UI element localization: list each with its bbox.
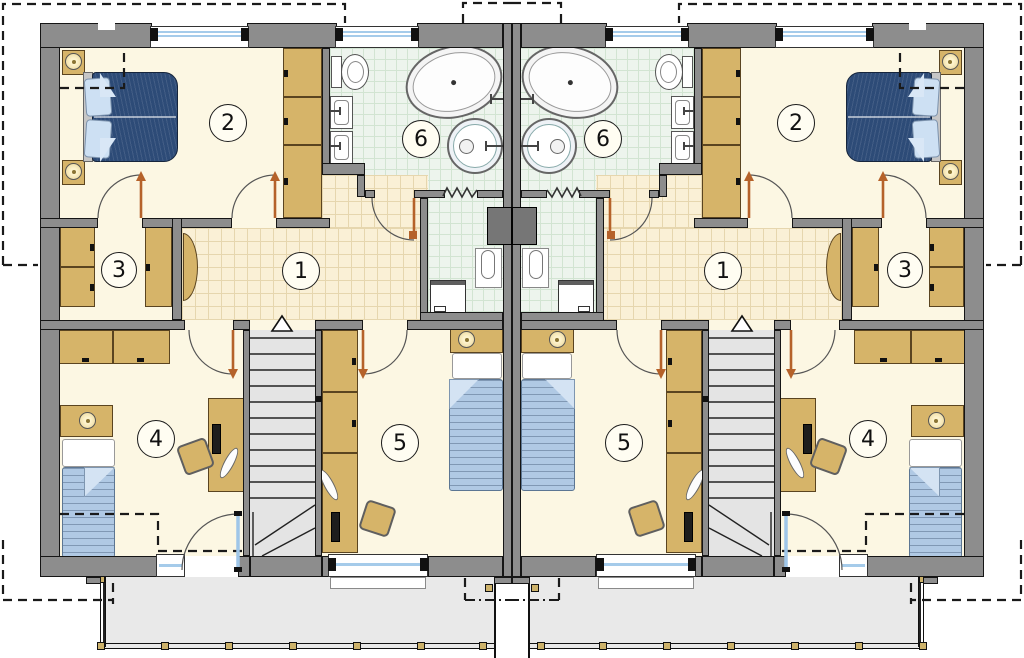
unit-right: 1 2 3 4 5 6 (512, 0, 1024, 658)
nightstand (521, 328, 574, 353)
window-glazing (343, 35, 411, 37)
washing-machine-panel (559, 281, 593, 285)
window-glazing (613, 31, 681, 33)
railing-post (225, 642, 233, 650)
stairwell-floor (709, 330, 774, 556)
party-wall (503, 23, 512, 577)
handle-dot (702, 396, 708, 402)
window-cap (866, 28, 874, 41)
window-glazing (158, 31, 241, 33)
bed-pillow (84, 77, 113, 117)
terrace-walkway (512, 582, 530, 658)
wardrobe-handle (82, 358, 89, 362)
lamp-icon (79, 412, 96, 429)
wardrobe-handle (930, 244, 934, 251)
window-glazing (604, 563, 688, 566)
wardrobe-handle (284, 118, 288, 125)
wardrobe-handle (137, 358, 144, 362)
bed-crease (94, 116, 176, 118)
roof-outline-dashed (463, 3, 512, 23)
wall (702, 556, 774, 577)
railing-post (289, 642, 297, 650)
wall (774, 320, 791, 330)
wall (842, 218, 852, 320)
wall (40, 320, 185, 330)
terrace-railing-left (918, 577, 924, 647)
window-cap (688, 558, 696, 571)
wall-notch-block (86, 577, 101, 584)
wall (40, 218, 98, 228)
railing-post (417, 642, 425, 650)
party-wall (512, 23, 521, 577)
room-label-text: 3 (112, 258, 126, 283)
window-glazing (336, 563, 420, 566)
wall (521, 190, 547, 198)
wardrobe-handle (284, 178, 288, 185)
terrace (512, 577, 921, 648)
wardrobe-handle (880, 358, 887, 362)
wall (420, 198, 428, 322)
window-glazing (159, 564, 182, 567)
bed-pillow (912, 77, 941, 117)
bed-pillow (62, 439, 115, 467)
wall (792, 218, 882, 228)
room-label-text: 4 (861, 427, 875, 452)
railing-post (537, 642, 545, 650)
sink-basin (675, 135, 690, 160)
sink-basin (334, 100, 349, 125)
room-label-text: 3 (898, 258, 912, 283)
room-label-text: 5 (393, 431, 407, 456)
wall (365, 190, 375, 198)
railing-post (97, 642, 105, 650)
stair-wall (315, 330, 322, 556)
keyboard-icon (684, 512, 693, 542)
railing-post (485, 584, 493, 592)
wall (477, 190, 503, 198)
stairwell-floor (250, 330, 315, 556)
wall-notch (98, 21, 115, 30)
bidet-bowl (481, 250, 495, 279)
window-cap (150, 28, 158, 41)
wall (40, 23, 152, 48)
window-cap (596, 558, 604, 571)
room-label-5: 5 (381, 424, 419, 462)
railing-post (599, 642, 607, 650)
stair-wall (774, 330, 781, 556)
window-glazing (842, 564, 865, 567)
wall (661, 320, 709, 330)
railing-post (479, 642, 487, 650)
sink-basin (675, 100, 690, 125)
room-label-3: 3 (887, 252, 923, 288)
wall (315, 320, 363, 330)
terrace (103, 577, 512, 648)
lamp-icon (942, 163, 959, 180)
wall (233, 320, 250, 330)
room-label-text: 5 (617, 431, 631, 456)
wall (521, 23, 607, 48)
wardrobe-handle (668, 358, 672, 365)
room-label-text: 2 (221, 111, 235, 136)
wall (694, 48, 702, 165)
wall (866, 556, 984, 577)
wardrobe (929, 227, 964, 267)
wall (694, 218, 748, 228)
toilet-bowl-inner (660, 61, 677, 83)
window-sill (598, 577, 694, 589)
room-label-text: 6 (414, 127, 428, 152)
wall (659, 175, 667, 197)
wall-notch-block (494, 577, 512, 584)
window-glazing (783, 31, 866, 33)
room-label-2: 2 (777, 104, 815, 142)
wall (687, 23, 777, 48)
wardrobe (929, 267, 964, 307)
wardrobe (283, 97, 322, 145)
wardrobe-handle (668, 420, 672, 427)
wall (521, 320, 617, 330)
desk (322, 453, 358, 553)
toilet-bowl-inner (347, 61, 364, 83)
wardrobe-handle (352, 420, 356, 427)
room-label-text: 1 (716, 259, 730, 284)
hall-floor-ext (596, 175, 702, 228)
room-label-6: 6 (584, 120, 622, 158)
wardrobe (283, 145, 322, 218)
window-glazing (613, 35, 681, 37)
wall (238, 556, 250, 577)
handle-dot (316, 396, 322, 402)
window-glazing (343, 31, 411, 33)
window (335, 26, 419, 48)
bed-pillow (522, 353, 572, 379)
lamp-icon (928, 412, 945, 429)
wall (322, 163, 365, 175)
sink-basin (334, 135, 349, 160)
room-label-6: 6 (402, 120, 440, 158)
wall-notch-block (923, 577, 938, 584)
railing-post (919, 642, 927, 650)
bed-crease (848, 116, 930, 118)
washing-machine-panel (431, 281, 465, 285)
window (775, 26, 874, 48)
window-cap (335, 28, 343, 41)
keyboard-icon (803, 424, 812, 454)
chimney (487, 207, 512, 245)
bed-pillow (452, 353, 502, 379)
window-cap (605, 28, 613, 41)
room-label-3: 3 (101, 252, 137, 288)
room-label-1: 1 (282, 252, 320, 290)
railing-post (353, 642, 361, 650)
keyboard-icon (331, 512, 340, 542)
railing-post (727, 642, 735, 650)
wall (926, 218, 984, 228)
stair-wall (702, 330, 709, 556)
wardrobe-handle (736, 178, 740, 185)
wall (649, 190, 659, 198)
lamp-icon (458, 331, 475, 348)
railing-post (791, 642, 799, 650)
room-label-4: 4 (849, 420, 887, 458)
unit-left: 1 2 3 4 5 6 (0, 0, 512, 658)
wall (774, 556, 786, 577)
wall (417, 23, 503, 48)
railing-post (663, 642, 671, 650)
window-cap (328, 558, 336, 571)
wall (250, 556, 322, 577)
window-cap (420, 558, 428, 571)
window (605, 26, 689, 48)
wall (964, 23, 984, 577)
window-glazing (783, 35, 866, 37)
room-label-text: 2 (789, 111, 803, 136)
wardrobe-handle (284, 70, 288, 77)
wardrobe-handle (146, 264, 150, 271)
window (150, 26, 249, 48)
wardrobe-handle (352, 358, 356, 365)
room-label-4: 4 (137, 420, 175, 458)
stair-wall (243, 330, 250, 556)
wall (40, 556, 158, 577)
roof-outline-dashed (512, 3, 561, 23)
wall (322, 48, 330, 165)
window-cap (411, 28, 419, 41)
wall (428, 556, 503, 577)
wall (40, 23, 60, 577)
wall (596, 198, 604, 322)
chimney (512, 207, 537, 245)
lamp-icon (65, 53, 82, 70)
room-label-text: 4 (149, 427, 163, 452)
wall (414, 190, 445, 198)
shower-knob (459, 139, 474, 154)
window-cap (681, 28, 689, 41)
wall (579, 190, 610, 198)
wall (142, 218, 232, 228)
hall-floor-ext (322, 175, 428, 228)
window-glazing (158, 35, 241, 37)
wardrobe-handle (90, 284, 94, 291)
window-cap (241, 28, 249, 41)
wardrobe-handle (90, 244, 94, 251)
wall (872, 23, 984, 48)
wall-notch (909, 21, 926, 30)
room-label-1: 1 (704, 252, 742, 290)
wall (407, 320, 503, 330)
wall (521, 556, 596, 577)
wardrobe-handle (874, 264, 878, 271)
bed-pillow (909, 439, 962, 467)
floor-plan-canvas: 1 2 3 4 5 6 (0, 0, 1024, 658)
wardrobe-handle (736, 118, 740, 125)
toilet-tank (682, 56, 693, 88)
wall (172, 218, 182, 320)
wardrobe-handle (935, 358, 942, 362)
railing-post (855, 642, 863, 650)
lamp-icon (942, 53, 959, 70)
wall-notch-block (512, 577, 530, 584)
keyboard-icon (212, 424, 221, 454)
shower-knob (550, 139, 565, 154)
room-label-text: 1 (294, 259, 308, 284)
window-sill (330, 577, 426, 589)
room-label-5: 5 (605, 424, 643, 462)
lamp-icon (65, 163, 82, 180)
bidet-bowl (529, 250, 543, 279)
railing-post (161, 642, 169, 650)
wall (659, 163, 702, 175)
room-label-2: 2 (209, 104, 247, 142)
wall (839, 320, 984, 330)
window-cap (775, 28, 783, 41)
wall (357, 175, 365, 197)
wardrobe-handle (930, 284, 934, 291)
wardrobe-handle (736, 70, 740, 77)
wardrobe (283, 48, 322, 97)
terrace-walkway (494, 582, 512, 658)
wall (247, 23, 337, 48)
railing-post (531, 584, 539, 592)
lamp-icon (549, 331, 566, 348)
wall (276, 218, 330, 228)
room-label-text: 6 (596, 127, 610, 152)
terrace-railing-left (100, 577, 106, 647)
